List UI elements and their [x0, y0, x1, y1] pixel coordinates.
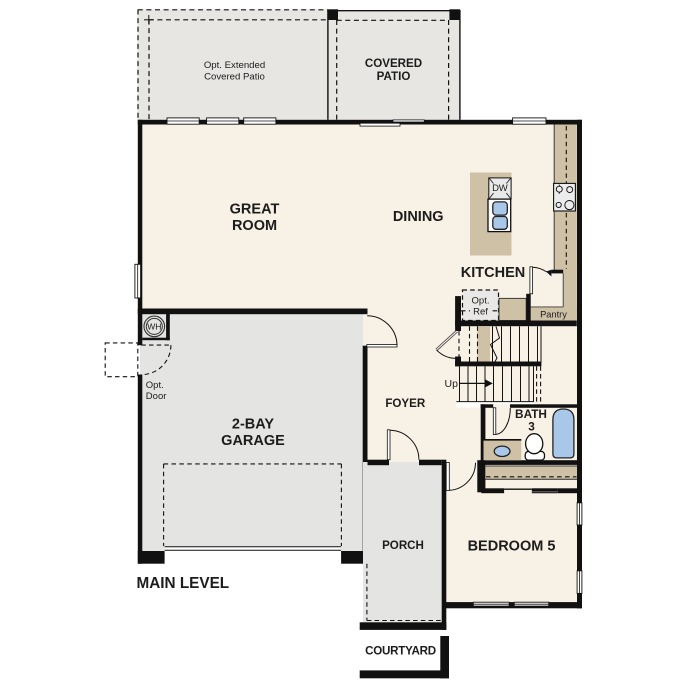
svg-text:ROOM: ROOM: [232, 218, 277, 234]
svg-text:MAIN LEVEL: MAIN LEVEL: [137, 575, 230, 592]
svg-text:Opt.: Opt.: [146, 380, 164, 391]
svg-text:PORCH: PORCH: [382, 539, 424, 552]
svg-text:KITCHEN: KITCHEN: [461, 265, 525, 281]
svg-text:Door: Door: [146, 391, 167, 402]
svg-text:GREAT: GREAT: [230, 202, 280, 218]
svg-text:Pantry: Pantry: [540, 310, 567, 320]
svg-text:Opt.: Opt.: [472, 296, 490, 307]
svg-text:DINING: DINING: [393, 209, 444, 225]
svg-text:BEDROOM 5: BEDROOM 5: [468, 539, 556, 555]
svg-text:FOYER: FOYER: [385, 397, 426, 410]
svg-text:3: 3: [528, 420, 535, 434]
svg-text:COURTYARD: COURTYARD: [365, 645, 436, 658]
svg-text:2-BAY: 2-BAY: [232, 417, 275, 433]
svg-text:COVERED: COVERED: [365, 57, 422, 70]
svg-text:DW: DW: [492, 183, 508, 194]
svg-text:Opt. Extended: Opt. Extended: [204, 60, 265, 71]
svg-text:WH: WH: [147, 321, 161, 331]
svg-text:Ref: Ref: [473, 307, 488, 318]
svg-text:Covered Patio: Covered Patio: [204, 72, 265, 83]
svg-text:PATIO: PATIO: [377, 70, 411, 83]
svg-text:Up: Up: [445, 378, 459, 390]
svg-text:GARAGE: GARAGE: [221, 433, 285, 449]
